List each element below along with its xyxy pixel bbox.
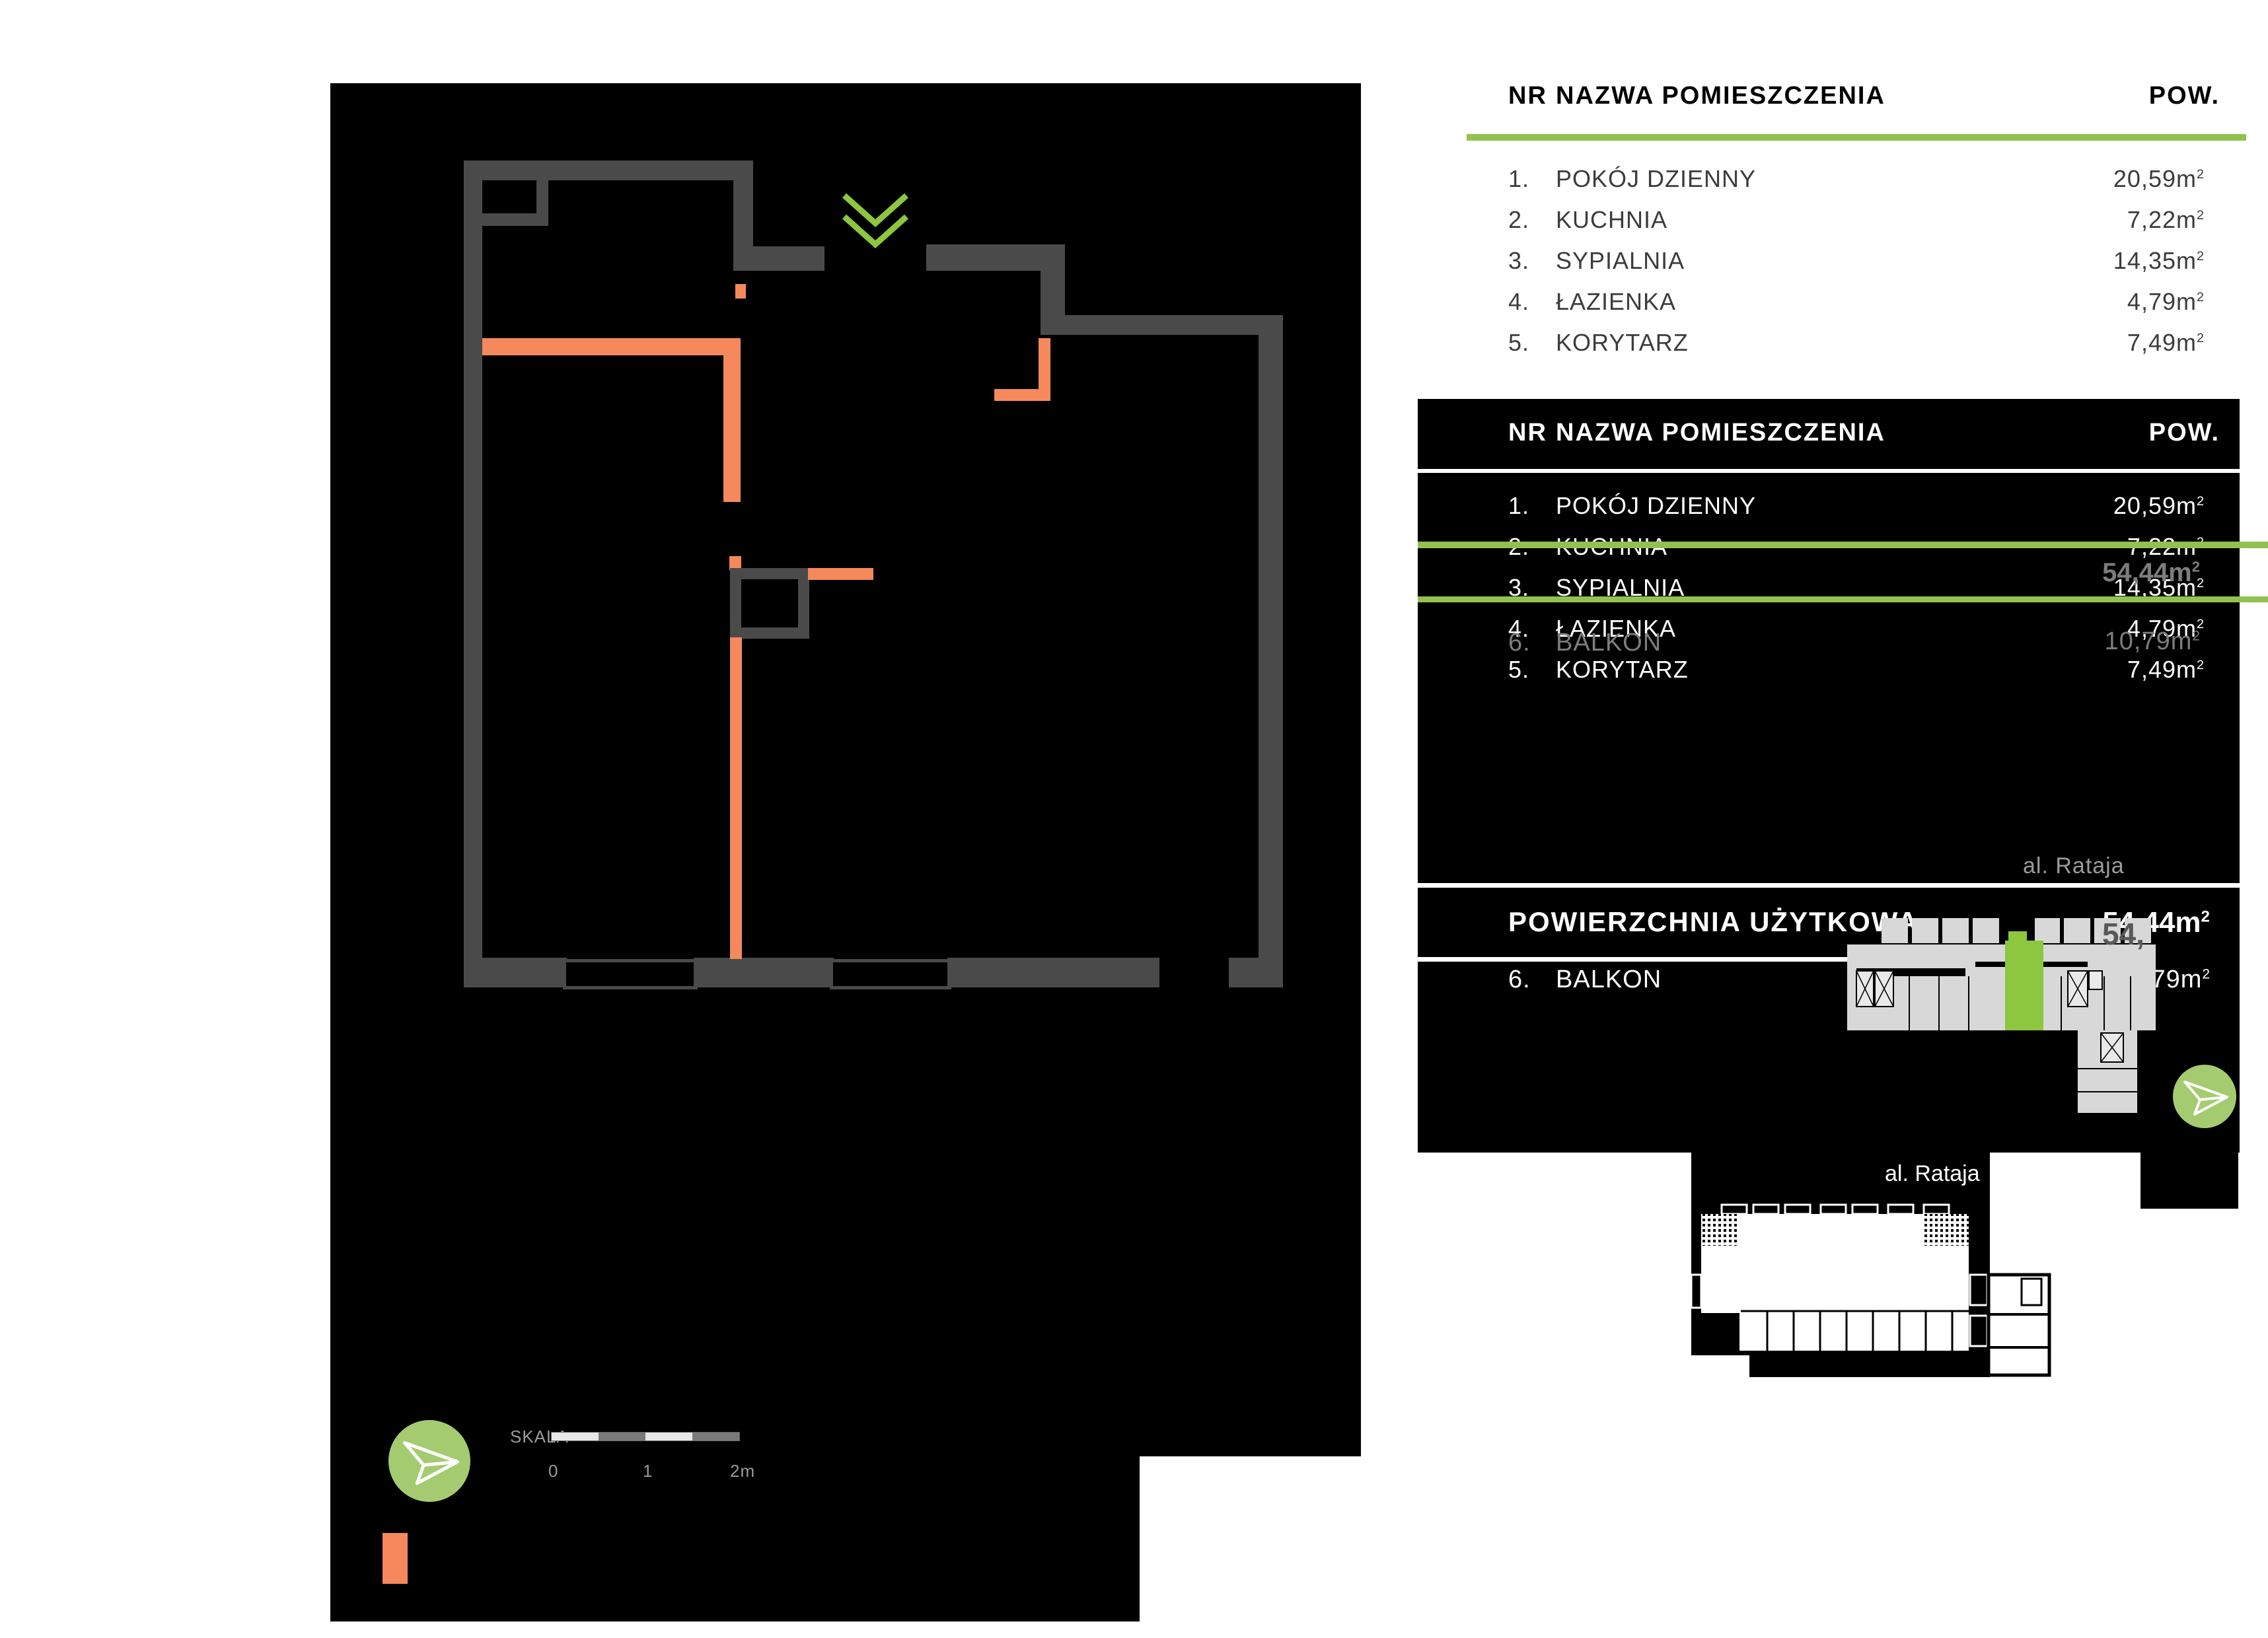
row-num: 5. — [1508, 329, 1556, 357]
row-name: KUCHNIA — [1556, 206, 1986, 234]
row-num: 3. — [1508, 247, 1556, 275]
row-name: POKÓJ DZIENNY — [1556, 165, 1986, 193]
green-divider — [1418, 596, 2268, 602]
direction-badge — [2173, 1065, 2236, 1128]
orange-partition-h1 — [482, 338, 723, 355]
site-plan-overview: 54, — [1843, 910, 2160, 1118]
table-header: NR NAZWA POMIESZCZENIA POW. — [1467, 79, 2220, 112]
row-area: 4,79m2 — [1986, 288, 2220, 316]
table-row: 2. KUCHNIA 7,22m2 — [1467, 199, 2220, 240]
table-row: 5. KORYTARZ 7,49m2 — [1467, 322, 2220, 363]
shaft-hole — [741, 579, 798, 627]
room-table-light-rows: 1. POKÓJ DZIENNY 20,59m2 2. KUCHNIA 7,22… — [1467, 159, 2220, 363]
page: { "room_table": { "headers": { "nr": "NR… — [0, 0, 2268, 1638]
row-num: 2. — [1508, 206, 1556, 234]
balkon-num: 6. — [1508, 966, 1531, 994]
row-name: ŁAZIENKA — [1556, 288, 1986, 316]
table1-green-underline — [1467, 134, 2246, 141]
street-label: al. Rataja — [2023, 853, 2125, 879]
table2-underline — [1418, 469, 2257, 473]
wall-bottom-1 — [464, 958, 567, 987]
header-nr: NR — [1508, 82, 1556, 110]
row-name: KORYTARZ — [1556, 656, 1986, 684]
summary-bottom-line — [1418, 957, 1847, 962]
table-row: 1. POKÓJ DZIENNY 20,59m2 — [1467, 159, 2220, 199]
row-area: 20,59m2 — [1986, 492, 2220, 520]
balkon-name: BALKON — [1556, 966, 1662, 994]
header-name: NAZWA POMIESZCZENIA — [1556, 419, 2002, 447]
paper-plane-icon — [2178, 1073, 2231, 1120]
row-num: 4. — [1508, 288, 1556, 316]
table-header: NR NAZWA POMIESZCZENIA POW. — [1467, 416, 2220, 449]
ghost-balkon-name: BALKON — [1556, 629, 1662, 657]
summary-top-line — [1418, 883, 2240, 888]
row-num: 5. — [1508, 656, 1556, 684]
wall-notch-right — [536, 180, 548, 226]
row-name: SYPIALNIA — [1556, 247, 1986, 275]
window — [830, 959, 951, 989]
ghost-total-area: 54,44m2 — [1916, 558, 2200, 588]
row-name: KORYTARZ — [1556, 329, 1986, 357]
orange-L-horiz — [994, 389, 1050, 401]
header-pow: POW. — [2002, 419, 2220, 447]
row-area: 7,49m2 — [1986, 329, 2220, 357]
ghost-partial-total: 54, — [2102, 917, 2144, 951]
header-nr: NR — [1508, 419, 1556, 447]
row-area: 20,59m2 — [1986, 165, 2220, 193]
entrance-chevron-icon — [839, 192, 912, 251]
green-divider — [1418, 542, 2268, 548]
orange-partition-v1 — [723, 338, 741, 502]
header-pow: POW. — [2002, 82, 2220, 110]
wall-right — [1259, 315, 1283, 987]
paper-plane-icon — [396, 1432, 462, 1490]
row-name: POKÓJ DZIENNY — [1556, 492, 1986, 520]
header-name: NAZWA POMIESZCZENIA — [1556, 82, 2002, 110]
site-plan-context: al. Rataja — [1691, 1149, 2061, 1377]
scale-tick-1: 1 — [643, 1461, 653, 1481]
floorplan-panel — [330, 83, 1361, 1456]
street-label-bottom: al. Rataja — [1885, 1161, 1980, 1186]
compass-badge — [388, 1420, 470, 1502]
orange-stub-top — [735, 284, 746, 299]
wall-bottom-4 — [1229, 958, 1283, 987]
room-table-dark: NR NAZWA POMIESZCZENIA POW. — [1467, 416, 2220, 449]
wall-top-left — [464, 160, 753, 180]
orange-arm — [808, 568, 873, 580]
ghost-balkon-area: 10,79m2 — [1916, 627, 2200, 656]
right-panel-tail — [2140, 1153, 2238, 1209]
room-table-dark-rows: 1. POKÓJ DZIENNY 20,59m2 2. KUCHNIA 7,22… — [1467, 485, 2220, 690]
room-table-light: NR NAZWA POMIESZCZENIA POW. — [1467, 79, 2220, 112]
scale-tick-2m: 2m — [730, 1461, 755, 1481]
row-area: 14,35m2 — [1986, 247, 2220, 275]
row-area: 7,22m2 — [1986, 206, 2220, 234]
orange-legend-swatch — [383, 1533, 408, 1584]
row-num: 1. — [1508, 492, 1556, 520]
wall-entry-left — [733, 246, 824, 271]
table-row: 3. SYPIALNIA 14,35m2 — [1467, 240, 2220, 281]
row-area: 7,49m2 — [1986, 656, 2220, 684]
scale-bar — [552, 1433, 739, 1441]
ghost-balkon-num: 6. — [1508, 629, 1531, 657]
wall-left — [464, 160, 482, 987]
row-num: 1. — [1508, 165, 1556, 193]
wall-bottom-3 — [947, 958, 1159, 987]
scale-tick-0: 0 — [548, 1461, 558, 1481]
table-row: 4. ŁAZIENKA 4,79m2 — [1467, 281, 2220, 322]
window — [563, 959, 698, 989]
wall-top-right — [1041, 315, 1283, 335]
table-row: 1. POKÓJ DZIENNY 20,59m2 — [1467, 485, 2220, 526]
wall-bottom-2 — [694, 958, 834, 987]
orange-partition-v2 — [730, 637, 742, 959]
